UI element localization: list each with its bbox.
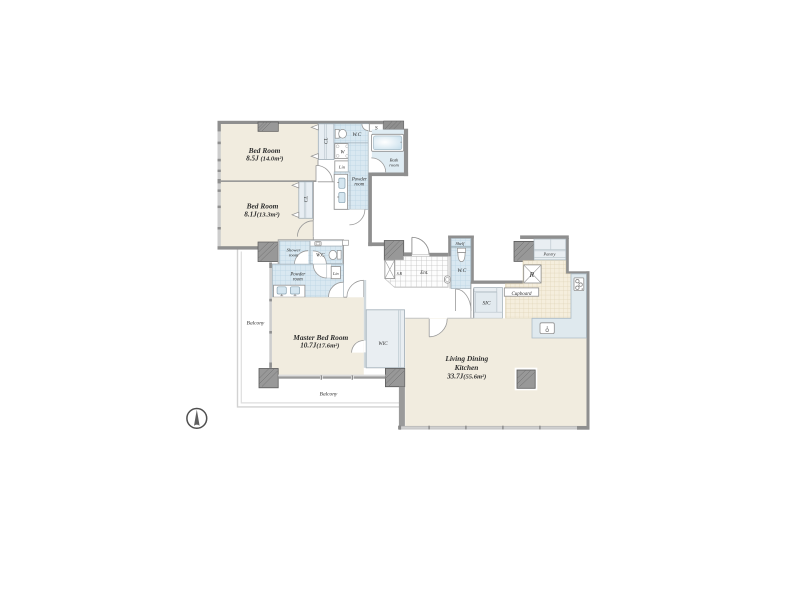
svg-text:Bed Room: Bed Room (248, 146, 281, 155)
svg-text:Shower: Shower (287, 247, 301, 252)
svg-text:CL: CL (303, 196, 309, 203)
svg-text:Pantry: Pantry (543, 251, 556, 256)
svg-text:room: room (389, 163, 399, 168)
svg-text:Kitchen: Kitchen (454, 363, 479, 372)
svg-text:8.5J (14.0m²): 8.5J (14.0m²) (246, 155, 283, 163)
svg-text:room: room (354, 183, 364, 188)
svg-text:Powder: Powder (289, 272, 305, 277)
svg-text:room: room (289, 253, 299, 258)
svg-text:Bath: Bath (390, 157, 399, 162)
svg-text:Balcony: Balcony (247, 321, 265, 327)
svg-text:Lin: Lin (332, 271, 339, 276)
svg-text:W.C: W.C (457, 268, 466, 274)
svg-text:Shelf: Shelf (456, 241, 466, 246)
svg-text:Cupboard: Cupboard (511, 292, 532, 297)
svg-text:Bed Room: Bed Room (246, 202, 279, 211)
svg-text:Living Dining: Living Dining (444, 354, 488, 363)
svg-text:room: room (293, 278, 303, 283)
svg-text:Balcony: Balcony (320, 391, 338, 397)
svg-text:R: R (529, 270, 535, 279)
svg-text:WIC: WIC (378, 342, 388, 347)
svg-text:Ent.: Ent. (419, 271, 428, 276)
svg-text:33.7J(55.6m²): 33.7J(55.6m²) (446, 373, 486, 381)
svg-text:SIC: SIC (482, 301, 490, 307)
svg-text:10.7J(17.6m²): 10.7J(17.6m²) (300, 342, 339, 350)
svg-text:Lin: Lin (338, 165, 346, 170)
svg-text:W.C: W.C (352, 132, 361, 138)
svg-text:Master Bed Room: Master Bed Room (292, 333, 348, 342)
svg-text:CL: CL (324, 138, 330, 145)
svg-text:W.C: W.C (316, 252, 325, 258)
svg-text:8.1J(13.3m²): 8.1J(13.3m²) (244, 210, 280, 218)
svg-text:S.B: S.B (397, 272, 403, 276)
